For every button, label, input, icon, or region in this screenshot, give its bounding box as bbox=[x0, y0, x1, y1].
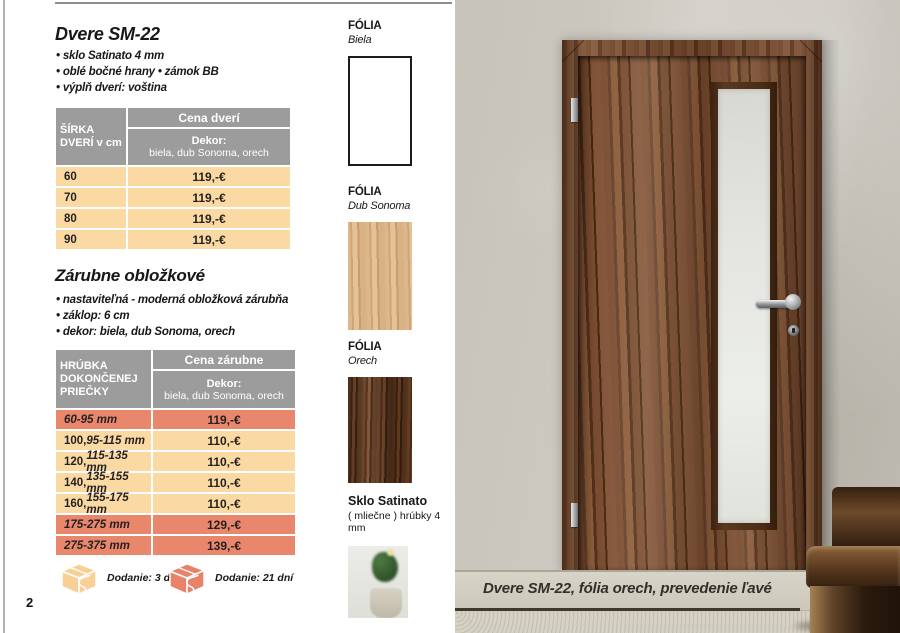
frame-price-cell: 129,-€ bbox=[153, 515, 295, 534]
package-box-icon bbox=[58, 560, 100, 596]
frame-price-cell: 139,-€ bbox=[153, 536, 295, 555]
frames-table-dekor-header: Dekor: biela, dub Sonoma, orech bbox=[153, 371, 295, 408]
swatch-folia-dub-sonoma: FÓLIA Dub Sonoma bbox=[348, 186, 412, 330]
frame-price-cell: 119,-€ bbox=[153, 410, 295, 429]
partition-thickness-cell: 140, 135-155 mm bbox=[56, 473, 151, 492]
door-photo: Dvere SM-22, fólia orech, prevedenie ľav… bbox=[455, 0, 900, 633]
dekor-values: biela, dub Sonoma, orech bbox=[149, 147, 269, 159]
frame-price-cell: 110,-€ bbox=[153, 473, 295, 492]
frames-price-table: HRÚBKA DOKONČENEJ PRIEČKY Cena zárubne D… bbox=[56, 350, 295, 555]
page-number: 2 bbox=[26, 595, 33, 610]
door-price-cell: 119,-€ bbox=[128, 167, 290, 186]
top-rule bbox=[55, 2, 452, 4]
walnut-foil-sample bbox=[348, 377, 412, 483]
frames-table-price-header: Cena zárubne bbox=[153, 350, 295, 369]
frame-price-cell: 110,-€ bbox=[153, 431, 295, 450]
swatch-heading: FÓLIA bbox=[348, 341, 412, 353]
swatch-name: Biela bbox=[348, 34, 412, 46]
oak-foil-sample bbox=[348, 222, 412, 330]
dekor-label: Dekor: bbox=[192, 135, 227, 147]
doors-table-price-header: Cena dverí bbox=[128, 108, 290, 127]
frames-bullet: • nastaviteľná - moderná obložková zárub… bbox=[56, 292, 288, 308]
dekor-values: biela, dub Sonoma, orech bbox=[164, 390, 284, 402]
door-hinge-bottom bbox=[571, 503, 578, 527]
frames-bullet: • záklop: 6 cm bbox=[56, 308, 288, 324]
sofa-seat bbox=[806, 546, 900, 588]
page-left-border bbox=[3, 0, 5, 633]
partition-thickness-cell: 120, 115-135 mm bbox=[56, 452, 151, 471]
door-width-cell: 60 bbox=[56, 167, 126, 186]
door-price-cell: 119,-€ bbox=[128, 209, 290, 228]
doors-price-table: ŠÍRKA DVERÍ v cm Cena dverí Dekor: biela… bbox=[56, 108, 290, 249]
plant-bud bbox=[387, 549, 394, 556]
frames-bullet-list: • nastaviteľná - moderná obložková zárub… bbox=[56, 292, 288, 340]
satinato-glass-photo bbox=[348, 546, 408, 618]
doors-table-col-header: ŠÍRKA DVERÍ v cm bbox=[56, 108, 126, 165]
frames-table-col-header: HRÚBKA DOKONČENEJ PRIEČKY bbox=[56, 350, 151, 408]
glass-sample-block: Sklo Satinato ( mliečne ) hrúbky 4 mm bbox=[348, 494, 458, 618]
product-title: Dvere SM-22 bbox=[55, 24, 160, 45]
door-price-cell: 119,-€ bbox=[128, 188, 290, 207]
package-box-icon bbox=[166, 560, 208, 596]
swatch-name: Orech bbox=[348, 355, 412, 367]
frames-section-title: Zárubne obložkové bbox=[55, 266, 205, 286]
product-bullet-list: • sklo Satinato 4 mm• oblé bočné hrany •… bbox=[56, 48, 219, 96]
partition-thickness-cell: 160, 155-175 mm bbox=[56, 494, 151, 513]
glass-sample-heading: Sklo Satinato bbox=[348, 494, 458, 508]
sofa-backrest bbox=[832, 487, 900, 550]
frame-price-cell: 110,-€ bbox=[153, 494, 295, 513]
white-foil-sample bbox=[348, 56, 412, 166]
swatch-heading: FÓLIA bbox=[348, 20, 412, 32]
product-bullet: • výplň dverí: voština bbox=[56, 80, 219, 96]
door-hinge-top bbox=[571, 98, 578, 122]
sofa-base bbox=[810, 586, 900, 633]
swatch-folia-biela: FÓLIA Biela bbox=[348, 20, 412, 166]
doors-table-dekor-header: Dekor: biela, dub Sonoma, orech bbox=[128, 129, 290, 165]
product-bullet: • oblé bočné hrany • zámok BB bbox=[56, 64, 219, 80]
glass-sample-subtitle: ( mliečne ) hrúbky 4 mm bbox=[348, 510, 458, 534]
delivery-info-extended: Dodanie: 21 dní bbox=[166, 560, 293, 596]
partition-thickness-cell: 100, 95-115 mm bbox=[56, 431, 151, 450]
swatch-heading: FÓLIA bbox=[348, 186, 412, 198]
swatch-folia-orech: FÓLIA Orech bbox=[348, 341, 412, 483]
door-handle-rosette bbox=[785, 294, 801, 310]
door-keyhole bbox=[788, 325, 799, 336]
product-bullet: • sklo Satinato 4 mm bbox=[56, 48, 219, 64]
delivery-label: Dodanie: 21 dní bbox=[215, 572, 293, 584]
frames-bullet: • dekor: biela, dub Sonoma, orech bbox=[56, 324, 288, 340]
photo-caption: Dvere SM-22, fólia orech, prevedenie ľav… bbox=[483, 580, 772, 597]
dekor-label: Dekor: bbox=[207, 378, 242, 390]
swatch-name: Dub Sonoma bbox=[348, 200, 412, 212]
door-width-cell: 80 bbox=[56, 209, 126, 228]
door-width-cell: 70 bbox=[56, 188, 126, 207]
delivery-info-standard: Dodanie: 3 dni bbox=[58, 560, 179, 596]
partition-thickness-cell: 275-375 mm bbox=[56, 536, 151, 555]
door-price-cell: 119,-€ bbox=[128, 230, 290, 249]
frame-price-cell: 110,-€ bbox=[153, 452, 295, 471]
plant-pot bbox=[370, 588, 402, 618]
plant-behind-glass bbox=[372, 552, 398, 582]
door-width-cell: 90 bbox=[56, 230, 126, 249]
partition-thickness-cell: 60-95 mm bbox=[56, 410, 151, 429]
partition-thickness-cell: 175-275 mm bbox=[56, 515, 151, 534]
